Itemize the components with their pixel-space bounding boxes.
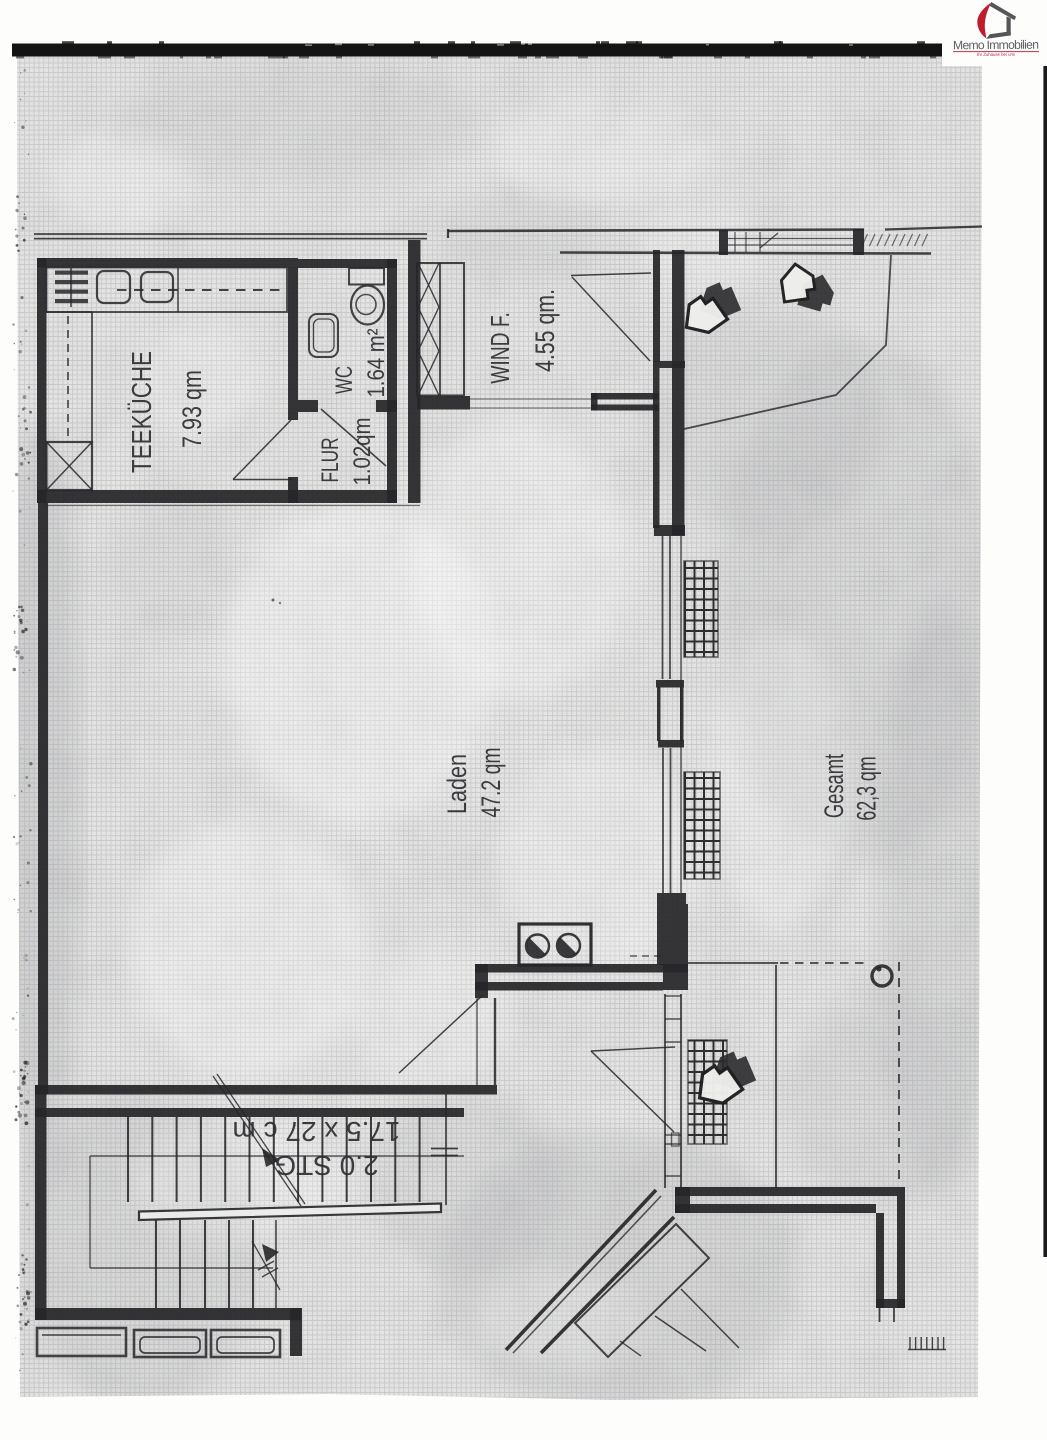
svg-text:WIND F.: WIND F.	[485, 312, 515, 384]
svg-text:TEEKÜCHE: TEEKÜCHE	[127, 351, 158, 473]
svg-text:2.0 STG: 2.0 STG	[274, 1150, 378, 1181]
svg-text:Memo Immobilien: Memo Immobilien	[953, 38, 1039, 53]
svg-text:1.02qm: 1.02qm	[348, 417, 375, 485]
svg-text:Ihr Zuhause bei uns: Ihr Zuhause bei uns	[977, 52, 1015, 57]
svg-text:1.64 m²: 1.64 m²	[362, 328, 389, 397]
svg-text:17.5 x 27 c m: 17.5 x 27 c m	[232, 1116, 400, 1147]
svg-text:47.2 qm: 47.2 qm	[476, 747, 506, 817]
svg-text:4.55 qm.: 4.55 qm.	[531, 289, 561, 372]
svg-text:FLUR: FLUR	[317, 437, 343, 482]
svg-text:62,3 qm: 62,3 qm	[851, 756, 882, 820]
svg-text:7.93 qm: 7.93 qm	[178, 370, 208, 448]
svg-text:Laden: Laden	[443, 754, 473, 814]
svg-text:Gesamt: Gesamt	[818, 753, 848, 818]
svg-text:WC: WC	[331, 366, 358, 394]
